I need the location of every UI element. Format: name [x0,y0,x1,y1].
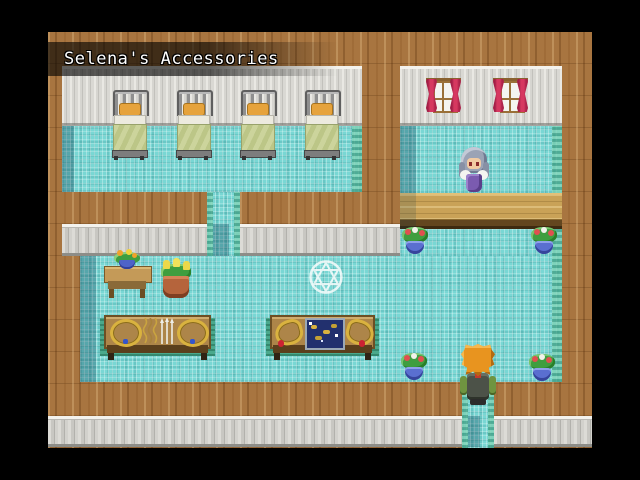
blue-pot [535,241,553,254]
bed-leg [114,156,118,160]
display-table-amulets[interactable] [266,315,379,360]
divider-wall-left [62,224,207,256]
display-leg [274,353,280,360]
blossom [539,354,545,360]
gold-ring-item [323,330,330,334]
blossom [419,230,425,236]
table-apron [108,281,146,289]
player-side-pack [489,376,496,395]
blossom [546,357,552,363]
blossom [411,353,417,359]
blossom [548,230,554,236]
terracotta-pot [163,276,189,298]
gold-ring-item [331,324,337,328]
window [493,78,528,113]
flower-pot [531,225,557,255]
player-character[interactable] [460,344,496,406]
wall-shadow [468,416,480,447]
sparkle [309,322,312,325]
chain-waves [142,318,158,344]
wall-shadow [80,256,96,382]
player-hair [461,344,495,376]
jewel-case [305,318,345,350]
display-table-necklaces[interactable] [100,315,215,360]
table-leg [109,289,114,298]
bed[interactable] [240,90,274,160]
player-feet [470,399,486,405]
wall-shadow [62,126,74,192]
shop-counter[interactable] [400,193,562,220]
bed-leg [332,156,336,160]
bed[interactable] [176,90,210,160]
map-name-banner: Selena's Accessories [48,42,338,76]
flower-pot [529,352,555,382]
bed-leg [204,156,208,160]
npc-eye [469,162,472,166]
floor-edge [234,192,240,256]
flower-table[interactable] [104,260,150,300]
sparkle [335,334,338,337]
tulip-blossom [163,260,170,269]
flower-pot [401,351,427,381]
flower-blossom [132,253,137,258]
bed[interactable] [112,90,146,160]
tulip-blossom [183,261,190,270]
table-leg [140,289,145,298]
blossom [418,356,424,362]
blossom [534,229,540,235]
blue-pot [533,368,551,381]
red-gem [359,340,365,347]
wall-shadow [400,193,416,229]
blossom [532,356,538,362]
floor-edge [352,126,362,192]
red-gem [278,340,284,347]
gold-ring-item [311,325,317,329]
wall-shadow [400,126,416,193]
bed-leg [178,156,182,160]
game-screen: Selena's Accessories [0,0,640,480]
npc-dress [466,174,482,192]
blossom [412,227,418,233]
bed-leg [268,156,272,160]
tulip-blossom [173,258,180,267]
display-leg [201,353,207,360]
blue-pot [405,367,423,380]
blossom [541,227,547,233]
shop-room-wall [400,66,562,126]
bed[interactable] [304,90,338,160]
tulip-pot[interactable] [158,258,194,300]
blue-gem [123,339,128,344]
display-leg [108,353,114,360]
bed-leg [140,156,144,160]
sparkle [321,340,323,342]
bed-leg [306,156,310,160]
bed-leg [242,156,246,160]
blossom [404,355,410,361]
magic-circle[interactable] [307,258,345,296]
game-viewport: Selena's Accessories [48,32,592,448]
silver-pins [159,318,175,344]
blue-gem [190,339,195,344]
blue-pot [406,241,424,254]
window [426,78,461,113]
player-side-pack [460,376,467,395]
blossom [405,229,411,235]
shopkeeper-npc[interactable] [458,146,490,194]
flower-pot [402,225,428,255]
display-leg [365,353,371,360]
flower-blossom [117,250,123,256]
bottom-wall-right [494,416,592,447]
bottom-wall-left [48,416,462,447]
npc-eye [476,162,479,166]
divider-wall-right [240,224,400,256]
map-name-label: Selena's Accessories [48,42,338,76]
wall-shadow [213,224,229,256]
